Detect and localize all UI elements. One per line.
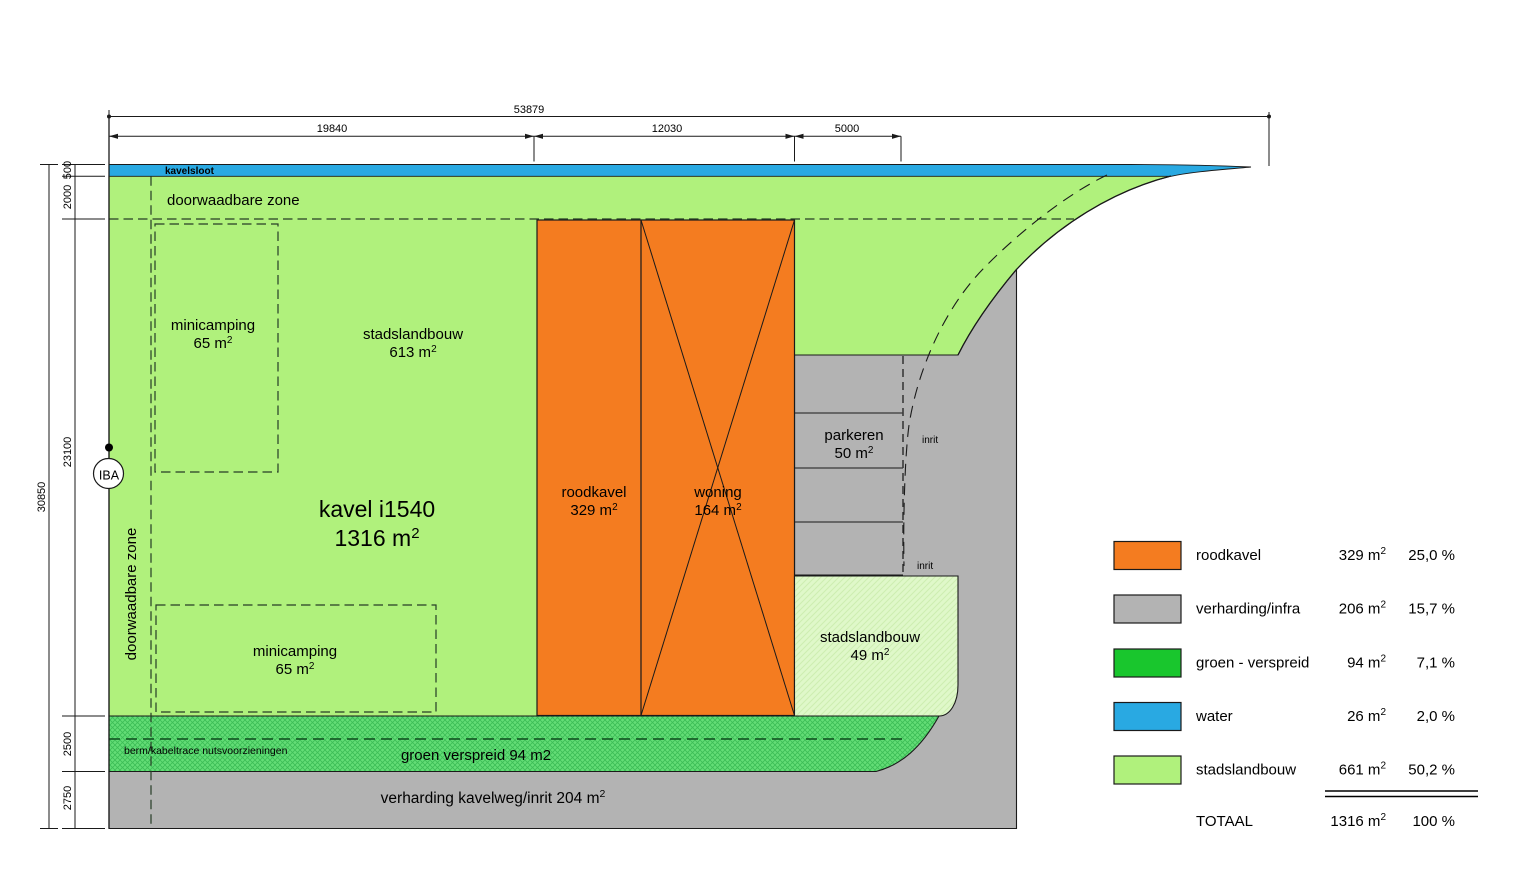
svg-text:inrit: inrit bbox=[922, 435, 938, 446]
svg-text:500: 500 bbox=[62, 161, 74, 179]
svg-text:1316 m2: 1316 m2 bbox=[1330, 812, 1386, 830]
svg-text:206 m2: 206 m2 bbox=[1339, 600, 1387, 618]
svg-text:164 m2: 164 m2 bbox=[694, 502, 742, 519]
svg-text:woning: woning bbox=[693, 484, 742, 501]
svg-text:12030: 12030 bbox=[652, 123, 683, 135]
svg-text:kavel i1540: kavel i1540 bbox=[319, 496, 435, 522]
svg-text:verharding kavelweg/inrit 204: verharding kavelweg/inrit 204 m2 bbox=[381, 788, 606, 807]
svg-text:100 %: 100 % bbox=[1412, 813, 1455, 830]
svg-text:7,1 %: 7,1 % bbox=[1417, 655, 1455, 672]
svg-text:613 m2: 613 m2 bbox=[389, 344, 437, 361]
svg-text:stadslandbouw: stadslandbouw bbox=[363, 326, 463, 343]
svg-text:2,0 %: 2,0 % bbox=[1417, 708, 1455, 725]
svg-text:stadslandbouw: stadslandbouw bbox=[1196, 762, 1296, 779]
svg-text:19840: 19840 bbox=[317, 123, 348, 135]
svg-text:groen verspreid 94 m2: groen verspreid 94 m2 bbox=[401, 747, 551, 764]
svg-text:2750: 2750 bbox=[62, 786, 74, 810]
svg-text:1316 m2: 1316 m2 bbox=[334, 525, 419, 551]
svg-text:doorwaadbare zone: doorwaadbare zone bbox=[123, 528, 140, 661]
svg-text:23100: 23100 bbox=[62, 437, 74, 468]
svg-text:minicamping: minicamping bbox=[171, 317, 255, 334]
svg-text:roodkavel: roodkavel bbox=[1196, 547, 1261, 564]
svg-text:2500: 2500 bbox=[62, 732, 74, 756]
svg-text:30850: 30850 bbox=[36, 482, 48, 513]
svg-text:329 m2: 329 m2 bbox=[570, 502, 618, 519]
svg-text:50,2 %: 50,2 % bbox=[1408, 762, 1455, 779]
svg-text:groen - verspreid: groen - verspreid bbox=[1196, 655, 1309, 672]
svg-text:15,7 %: 15,7 % bbox=[1408, 601, 1455, 618]
svg-text:minicamping: minicamping bbox=[253, 643, 337, 660]
svg-text:berm/kabeltrace nutsvoorzienin: berm/kabeltrace nutsvoorzieningen bbox=[124, 745, 288, 757]
svg-text:doorwaadbare zone: doorwaadbare zone bbox=[167, 192, 300, 209]
svg-text:25,0 %: 25,0 % bbox=[1408, 547, 1455, 564]
svg-text:kavelsloot: kavelsloot bbox=[165, 166, 215, 177]
svg-text:661 m2: 661 m2 bbox=[1339, 761, 1387, 779]
svg-text:IBA: IBA bbox=[99, 469, 120, 483]
svg-text:parkeren: parkeren bbox=[824, 427, 883, 444]
svg-text:inrit: inrit bbox=[917, 561, 933, 572]
svg-text:329 m2: 329 m2 bbox=[1339, 546, 1387, 564]
svg-text:verharding/infra: verharding/infra bbox=[1196, 601, 1301, 618]
svg-text:water: water bbox=[1195, 708, 1233, 725]
svg-text:5000: 5000 bbox=[835, 123, 859, 135]
svg-text:53879: 53879 bbox=[514, 104, 545, 116]
svg-text:roodkavel: roodkavel bbox=[561, 484, 626, 501]
svg-text:2000: 2000 bbox=[62, 185, 74, 209]
svg-text:TOTAAL: TOTAAL bbox=[1196, 813, 1253, 830]
svg-text:stadslandbouw: stadslandbouw bbox=[820, 629, 920, 646]
